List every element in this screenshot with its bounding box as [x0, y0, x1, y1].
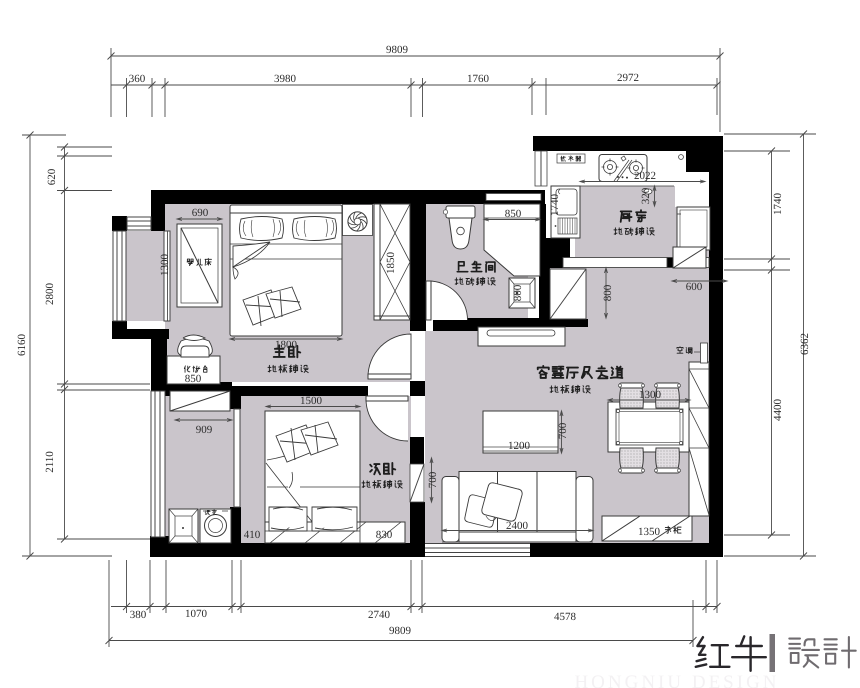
svg-text:1070: 1070 [185, 608, 208, 620]
svg-text:380: 380 [130, 609, 147, 621]
svg-text:1500: 1500 [300, 395, 323, 407]
svg-text:800: 800 [512, 284, 524, 301]
svg-text:2022: 2022 [634, 170, 656, 182]
svg-text:690: 690 [192, 207, 209, 219]
svg-text:2400: 2400 [506, 520, 529, 532]
svg-text:909: 909 [196, 424, 213, 436]
svg-text:2740: 2740 [368, 609, 391, 621]
svg-text:700: 700 [557, 422, 569, 439]
svg-text:6362: 6362 [799, 333, 811, 355]
svg-text:620: 620 [46, 168, 58, 185]
svg-text:1850: 1850 [385, 252, 397, 275]
svg-text:1200: 1200 [508, 440, 531, 452]
svg-text:2110: 2110 [44, 451, 56, 473]
svg-text:4400: 4400 [772, 399, 784, 422]
svg-text:2972: 2972 [617, 72, 639, 84]
svg-text:800: 800 [602, 284, 614, 301]
svg-text:1350: 1350 [638, 526, 661, 538]
svg-text:1300: 1300 [639, 389, 662, 401]
svg-text:HONGNIU DESIGN: HONGNIU DESIGN [574, 672, 779, 688]
svg-text:850: 850 [505, 208, 522, 220]
svg-text:1740: 1740 [772, 193, 784, 216]
svg-text:1740: 1740 [549, 194, 561, 217]
svg-text:9809: 9809 [389, 625, 412, 637]
svg-text:830: 830 [376, 529, 393, 541]
svg-text:6160: 6160 [16, 334, 28, 357]
svg-text:2800: 2800 [44, 283, 56, 306]
svg-text:3980: 3980 [274, 73, 297, 85]
svg-text:850: 850 [185, 373, 202, 385]
svg-text:9809: 9809 [386, 44, 409, 56]
svg-text:320: 320 [640, 187, 652, 204]
svg-text:360: 360 [129, 73, 146, 85]
svg-text:700: 700 [427, 471, 439, 488]
svg-text:410: 410 [244, 529, 261, 541]
svg-text:4578: 4578 [554, 611, 577, 623]
svg-text:1300: 1300 [159, 254, 171, 277]
svg-text:600: 600 [686, 281, 703, 293]
svg-text:1760: 1760 [467, 73, 490, 85]
